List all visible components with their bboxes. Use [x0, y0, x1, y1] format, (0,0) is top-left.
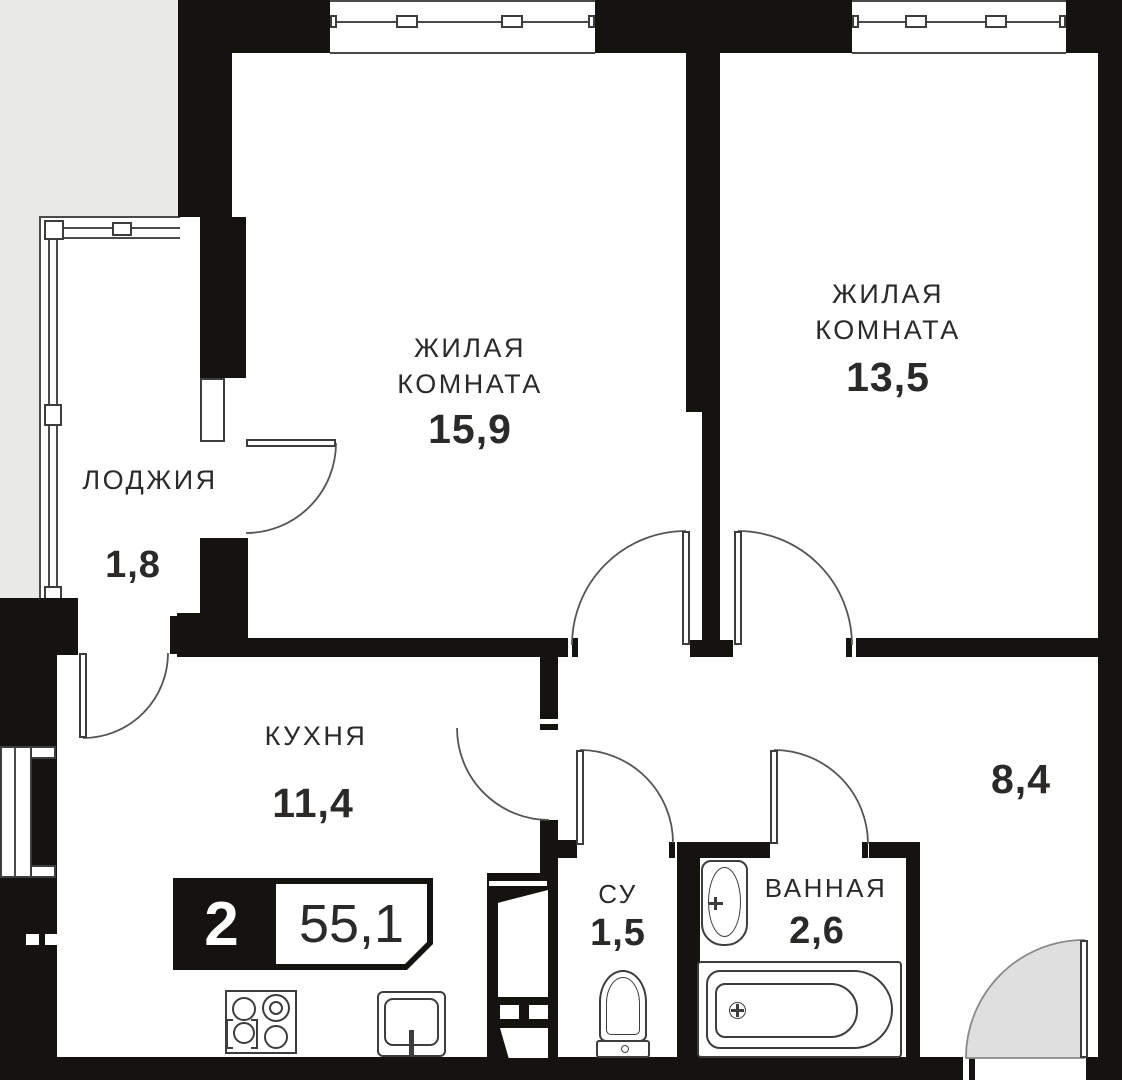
room-area-hallway: 8,4	[951, 756, 1091, 803]
room-label-living-1: ЖИЛАЯ КОМНАТА	[330, 330, 610, 402]
room-name: ЖИЛАЯ	[330, 330, 610, 366]
room-label-living-2: ЖИЛАЯ КОМНАТА	[748, 276, 1028, 348]
door-arc	[774, 750, 868, 844]
room-label-wc: СУ	[558, 876, 678, 912]
door-leaf	[770, 750, 778, 844]
room-area-wc: 1,5	[558, 912, 678, 955]
rooms-count-value: 2	[204, 889, 238, 960]
door-leaf	[79, 653, 87, 738]
total-area-badge: 2 55,1	[173, 878, 433, 970]
tech-shaft	[489, 881, 547, 886]
door-leaf	[246, 439, 336, 447]
tech-shaft	[498, 890, 548, 997]
door-arc	[83, 653, 168, 738]
door-arc	[580, 750, 673, 843]
toilet	[606, 977, 640, 1035]
room-name: КОМНАТА	[330, 366, 610, 402]
door-leaf	[576, 750, 584, 845]
bathtub-drain	[736, 1004, 739, 1017]
tech-shaft	[529, 1005, 548, 1019]
room-area-kitchen: 11,4	[193, 780, 433, 827]
room-label-bathroom: ВАННАЯ	[706, 870, 946, 906]
stove-burner	[264, 1025, 288, 1049]
toilet-button	[621, 1045, 629, 1053]
room-area-living-2: 13,5	[748, 354, 1028, 401]
door-leaf	[734, 531, 742, 645]
rooms-count: 2	[173, 878, 270, 970]
door-leaf	[682, 531, 690, 645]
opening-arc	[457, 728, 549, 820]
room-area-loggia: 1,8	[23, 544, 243, 587]
room-name: КОМНАТА	[748, 312, 1028, 348]
total-area-box-inner: 55,1	[276, 884, 427, 964]
room-area-bathroom: 2,6	[697, 910, 937, 953]
kitchen-faucet	[409, 1030, 414, 1056]
door-arc	[572, 531, 686, 645]
room-label-loggia: ЛОДЖИЯ	[40, 462, 260, 498]
stove-burner	[233, 1022, 255, 1044]
room-label-kitchen: КУХНЯ	[196, 718, 436, 754]
stove-burner	[269, 1001, 283, 1015]
stove-burner	[232, 997, 256, 1021]
room-name: ЖИЛАЯ	[748, 276, 1028, 312]
room-area-living-1: 15,9	[330, 406, 610, 453]
entrance-door-swing	[966, 940, 1084, 1058]
entrance-door-leaf	[1080, 940, 1088, 1058]
floor-plan: ЖИЛАЯ КОМНАТА 15,9 ЖИЛАЯ КОМНАТА 13,5 ЛО…	[0, 0, 1122, 1080]
stove-bracket	[226, 1019, 233, 1049]
tech-shaft	[500, 1005, 519, 1019]
total-area-value: 55,1	[299, 893, 404, 955]
door-arc	[738, 531, 852, 645]
